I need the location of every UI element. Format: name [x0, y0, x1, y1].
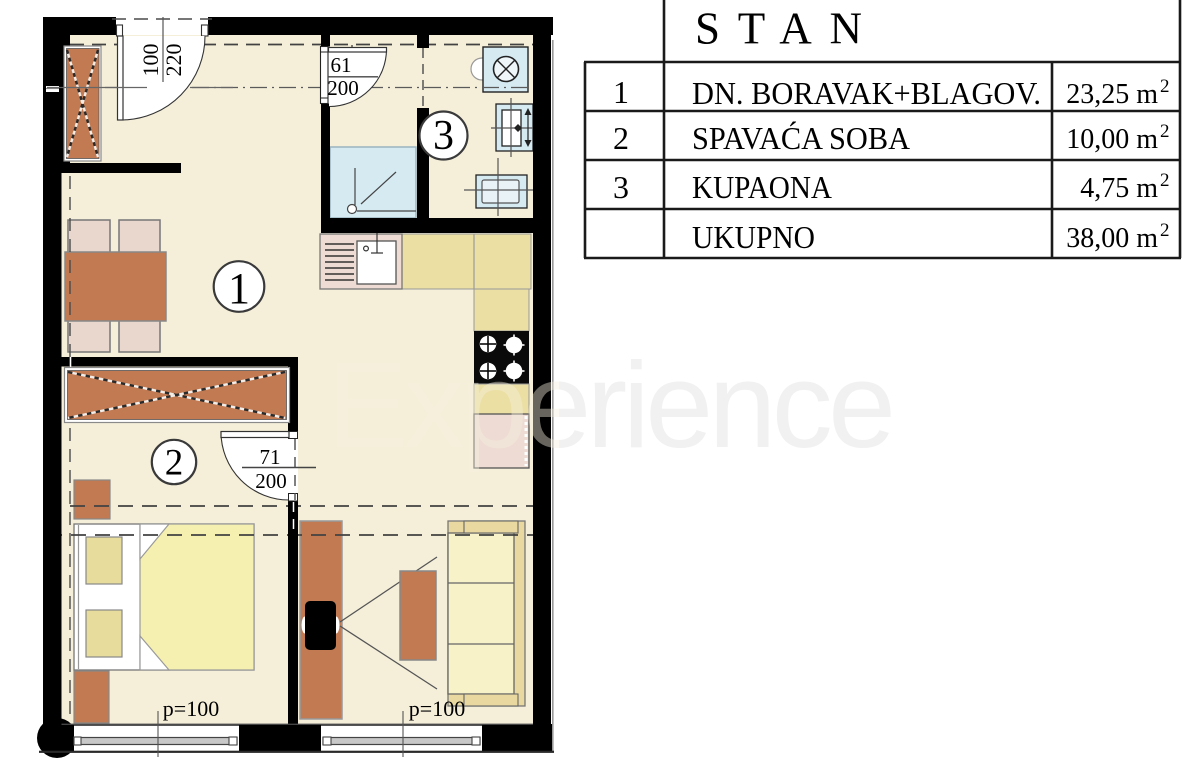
svg-text:p=100: p=100 — [409, 696, 465, 721]
svg-text:2: 2 — [1160, 121, 1170, 142]
svg-text:10,00 m: 10,00 m — [1066, 124, 1158, 155]
svg-text:2: 2 — [1160, 220, 1170, 241]
svg-text:200: 200 — [327, 76, 359, 100]
svg-text:2: 2 — [1160, 170, 1170, 191]
svg-text:38,00 m: 38,00 m — [1066, 223, 1158, 254]
svg-text:220: 220 — [161, 44, 186, 77]
svg-text:4,75 m: 4,75 m — [1080, 173, 1158, 204]
svg-text:200: 200 — [255, 469, 287, 493]
svg-text:1: 1 — [228, 264, 250, 313]
svg-text:2: 2 — [1160, 76, 1170, 97]
svg-text:2: 2 — [165, 443, 184, 484]
svg-text:71: 71 — [260, 445, 281, 469]
svg-text:100: 100 — [138, 44, 163, 77]
svg-text:1: 1 — [613, 74, 629, 110]
svg-text:DN. BORAVAK+BLAGOV.: DN. BORAVAK+BLAGOV. — [692, 75, 1041, 111]
svg-text:KUPAONA: KUPAONA — [692, 169, 832, 205]
svg-text:p=100: p=100 — [163, 696, 219, 721]
svg-text:3: 3 — [613, 169, 629, 205]
svg-text:61: 61 — [331, 53, 352, 77]
svg-text:2: 2 — [613, 120, 629, 156]
svg-text:SPAVAĆA SOBA: SPAVAĆA SOBA — [692, 120, 910, 156]
svg-text:23,25 m: 23,25 m — [1066, 79, 1158, 110]
svg-text:UKUPNO: UKUPNO — [692, 219, 815, 255]
svg-text:3: 3 — [433, 113, 454, 159]
